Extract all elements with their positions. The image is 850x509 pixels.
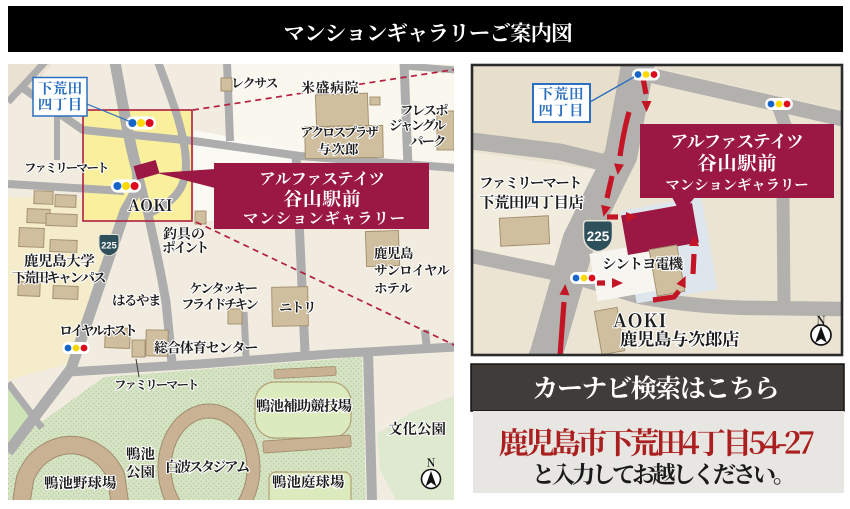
- svg-text:225: 225: [101, 240, 117, 250]
- svg-text:225: 225: [587, 229, 610, 244]
